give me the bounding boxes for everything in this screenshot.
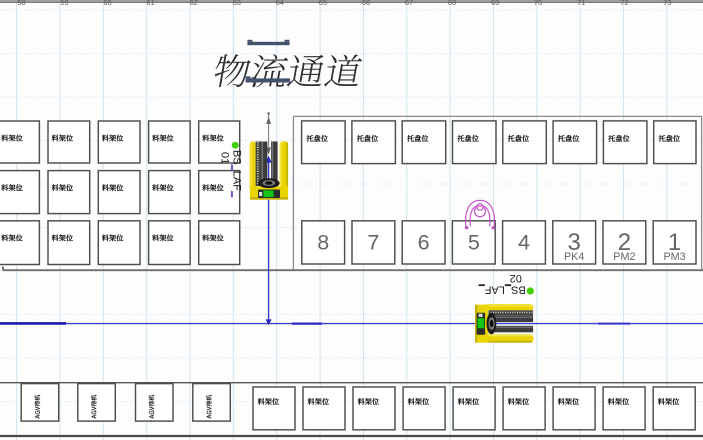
svg-text:5: 5 — [468, 231, 480, 255]
svg-text:PK4: PK4 — [564, 251, 584, 263]
svg-text:6: 6 — [418, 231, 430, 255]
svg-text:61: 61 — [146, 0, 154, 7]
svg-text:7: 7 — [367, 231, 379, 255]
svg-text:58: 58 — [17, 0, 25, 7]
svg-text:BS_LAF_: BS_LAF_ — [478, 284, 526, 296]
svg-text:63: 63 — [233, 0, 241, 7]
svg-text:BS_LAF_: BS_LAF_ — [230, 150, 242, 198]
svg-text:PM2: PM2 — [613, 251, 635, 263]
svg-text:69: 69 — [491, 0, 499, 7]
svg-text:66: 66 — [362, 0, 370, 7]
svg-text:8: 8 — [317, 231, 329, 255]
svg-text:60: 60 — [103, 0, 111, 7]
svg-text:PM3: PM3 — [663, 251, 685, 263]
svg-text:59: 59 — [60, 0, 68, 7]
svg-text:72: 72 — [620, 0, 628, 7]
svg-text:68: 68 — [448, 0, 456, 7]
svg-text:02: 02 — [510, 272, 522, 284]
svg-text:62: 62 — [190, 0, 198, 7]
svg-text:70: 70 — [534, 0, 542, 7]
svg-text:01: 01 — [218, 152, 230, 164]
svg-text:64: 64 — [276, 0, 284, 7]
svg-text:71: 71 — [577, 0, 585, 7]
svg-text:73: 73 — [663, 0, 671, 7]
svg-text:4: 4 — [518, 231, 530, 255]
svg-text:67: 67 — [405, 0, 413, 7]
svg-text:65: 65 — [319, 0, 327, 7]
